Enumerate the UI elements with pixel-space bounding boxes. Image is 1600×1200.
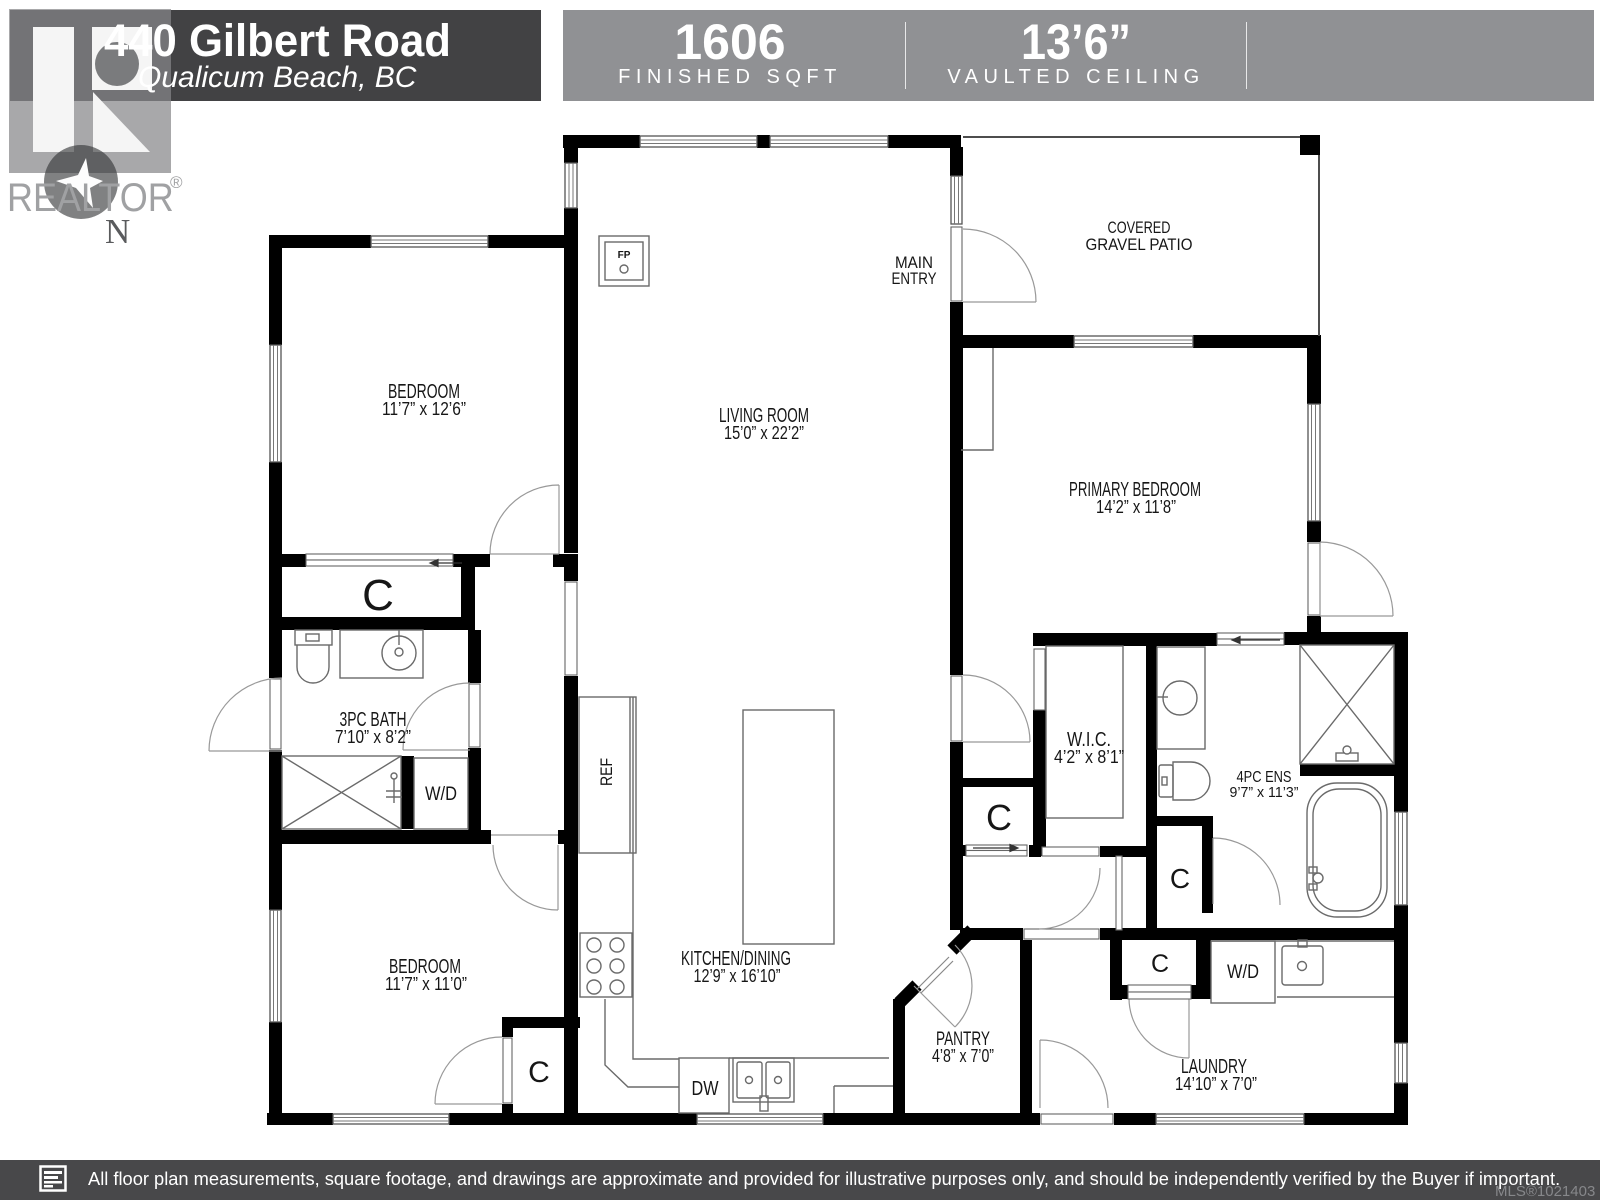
svg-text:11’7” x 12’6”: 11’7” x 12’6”	[382, 399, 466, 419]
svg-text:C: C	[986, 797, 1012, 838]
svg-text:GRAVEL PATIO: GRAVEL PATIO	[1086, 235, 1193, 254]
svg-text:7’10” x 8’2”: 7’10” x 8’2”	[335, 727, 411, 747]
svg-text:C: C	[1151, 950, 1169, 978]
svg-text:14’2” x 11’8”: 14’2” x 11’8”	[1096, 497, 1176, 517]
svg-text:4’2” x 8’1”: 4’2” x 8’1”	[1054, 747, 1124, 767]
svg-text:ENTRY: ENTRY	[892, 269, 937, 288]
svg-text:DW: DW	[692, 1078, 719, 1100]
svg-text:14’10” x 7’0”: 14’10” x 7’0”	[1175, 1074, 1257, 1094]
svg-text:REF: REF	[597, 758, 616, 786]
svg-text:15’0” x 22’2”: 15’0” x 22’2”	[724, 423, 804, 443]
svg-text:C: C	[1170, 863, 1190, 894]
svg-text:FP: FP	[618, 250, 631, 261]
svg-text:W/D: W/D	[1227, 962, 1259, 983]
svg-text:9’7” x 11’3”: 9’7” x 11’3”	[1230, 784, 1299, 801]
svg-text:C: C	[528, 1056, 550, 1089]
svg-text:12’9” x 16’10”: 12’9” x 16’10”	[694, 966, 781, 986]
svg-text:4’8” x 7’0”: 4’8” x 7’0”	[932, 1046, 994, 1066]
svg-text:C: C	[362, 571, 394, 620]
svg-text:11’7” x 11’0”: 11’7” x 11’0”	[385, 974, 467, 994]
svg-text:W/D: W/D	[425, 784, 457, 805]
